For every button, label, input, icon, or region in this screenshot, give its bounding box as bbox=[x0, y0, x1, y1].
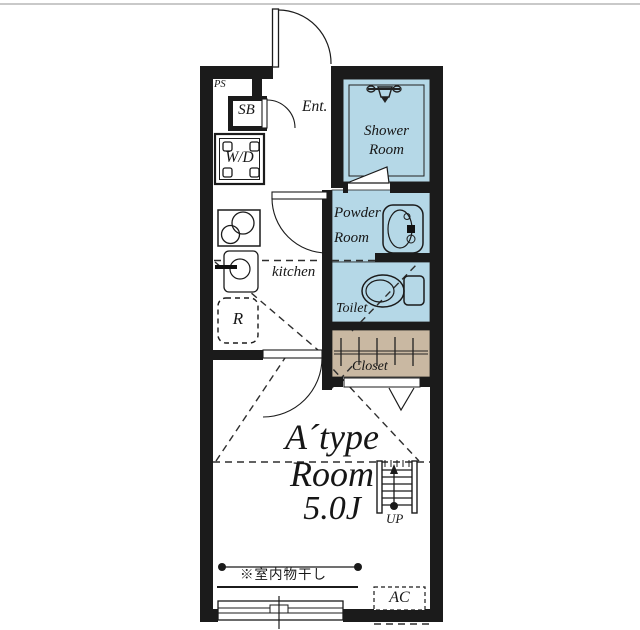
pipe-space-label: PS bbox=[214, 80, 226, 91]
kitchen-sink-icon bbox=[215, 251, 258, 292]
toilet-label: Toilet bbox=[336, 302, 367, 316]
shoe-box-label: SB bbox=[231, 103, 262, 118]
stove-icon bbox=[218, 210, 260, 246]
ac-label: AC bbox=[374, 590, 425, 606]
washer-dryer-label: W/D bbox=[215, 150, 264, 166]
shower-room-label-line2: Room bbox=[343, 143, 430, 158]
laundry-note-label: ※室内物干し bbox=[240, 568, 327, 582]
powder-room-label-line1: Powder bbox=[334, 206, 381, 221]
corridor-door-arc bbox=[272, 192, 327, 253]
refrigerator-label: R bbox=[218, 310, 258, 327]
closet-folding-door-icon bbox=[344, 378, 420, 410]
powder-room-label-line2: Room bbox=[334, 231, 369, 246]
shoebox-door-arc bbox=[262, 99, 295, 128]
room-type-label-line1: A´type bbox=[232, 419, 432, 455]
entrance-label: Ent. bbox=[302, 99, 327, 115]
room-type-label-line2: Room bbox=[232, 456, 432, 492]
kitchen-label: kitchen bbox=[272, 265, 315, 280]
floor-plan-drawing bbox=[0, 0, 640, 630]
powder-room-floor bbox=[332, 190, 430, 262]
stairs-up-label: UP bbox=[386, 512, 403, 525]
closet-label: Closet bbox=[352, 360, 388, 374]
shower-room-label-line1: Shower bbox=[343, 124, 430, 139]
floor-plan-page: PS SB Ent. W/D Shower Room Powder Room T… bbox=[0, 0, 640, 630]
window-icon bbox=[217, 587, 358, 629]
entrance-door-arc bbox=[273, 9, 332, 79]
kitchen-door-arc bbox=[263, 350, 322, 417]
